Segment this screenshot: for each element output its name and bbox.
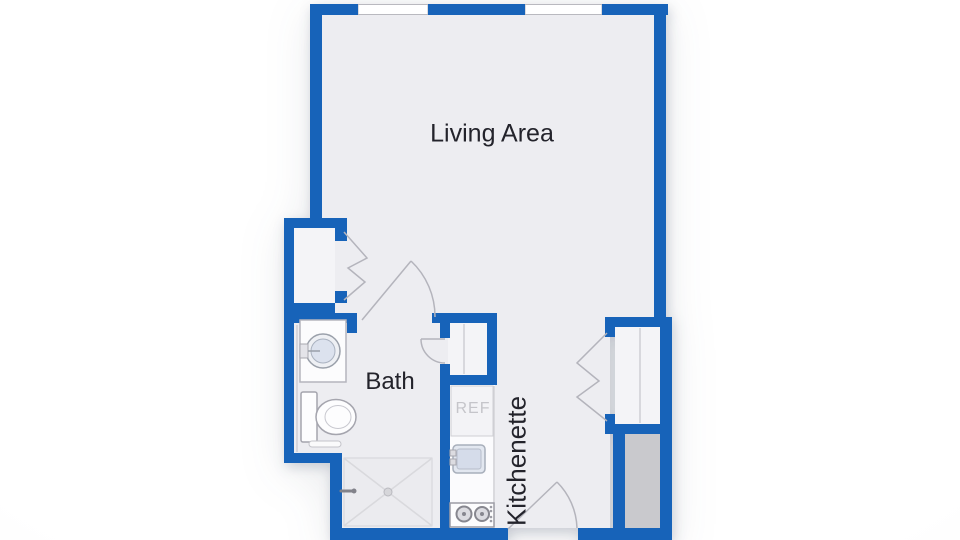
bathroom-sink-icon [300, 320, 346, 382]
shower-drain-icon [384, 488, 392, 496]
bath-label: Bath [365, 368, 414, 396]
refrigerator-label: REF [456, 400, 491, 418]
floor-plan-canvas [0, 0, 960, 540]
towel-bar-icon [309, 441, 341, 447]
closet-right-interior [615, 327, 660, 424]
shower-icon [341, 458, 432, 526]
floor-plan: Living Area Bath Kitchenette REF [0, 0, 960, 540]
kitchen-sink-icon [450, 445, 485, 473]
window-icon [358, 5, 428, 15]
linen-closet-interior [448, 323, 487, 375]
kitchenette-label: Kitchenette [502, 396, 533, 526]
window-icon [525, 5, 602, 15]
living-area-label: Living Area [430, 120, 554, 149]
closet-left-interior [294, 228, 335, 303]
utility-chase [625, 434, 660, 528]
stove-icon [450, 503, 494, 527]
